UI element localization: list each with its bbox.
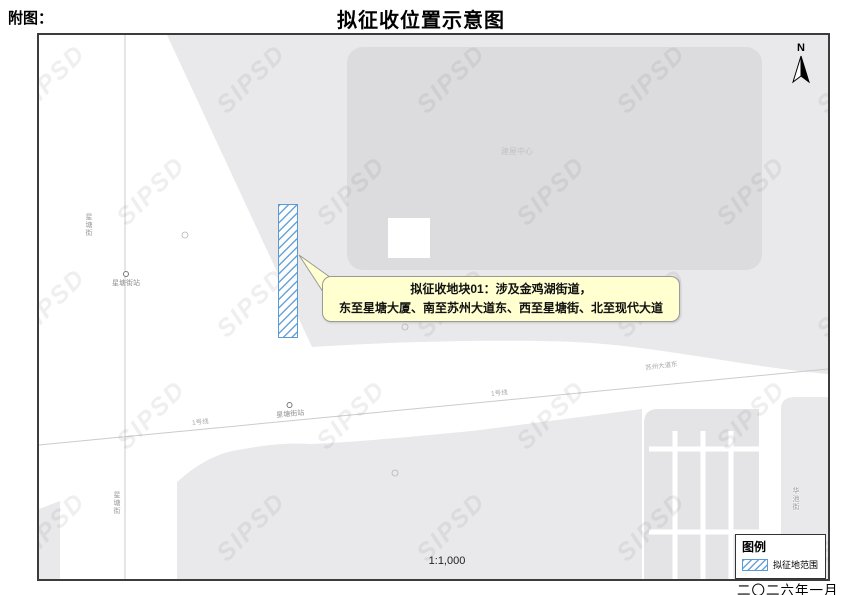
parcel-sw-sliver — [39, 501, 60, 579]
legend-item: 拟征地范围 — [742, 558, 819, 571]
legend-hatch-swatch — [742, 559, 768, 571]
legend-title: 图例 — [742, 538, 819, 555]
metro-icon — [286, 402, 293, 409]
label-building-center: 建屋中心 — [501, 146, 533, 157]
north-label: N — [797, 43, 805, 54]
building-notch — [388, 218, 430, 258]
metro-icon — [123, 271, 129, 277]
parcel-south-block — [177, 409, 642, 579]
label-metro-line1-west: 1号线 — [192, 415, 209, 426]
map-scale: 1:1,000 — [407, 555, 487, 567]
callout-line2: 东至星塘大厦、南至苏州大道东、西至星塘街、北至现代大道 — [339, 299, 663, 318]
label-xingtang-street-south: 星塘街 — [111, 491, 121, 515]
label-metro-line1-east: 1号线 — [491, 386, 508, 397]
legend-item-label: 拟征地范围 — [773, 558, 818, 571]
north-arrow: N — [789, 43, 813, 84]
callout-box: 拟征收地块01：涉及金鸡湖街道， 东至星塘大厦、南至苏州大道东、西至星塘街、北至… — [322, 276, 680, 322]
label-huachi-street: 华池街 — [790, 487, 800, 511]
page-title: 拟征收位置示意图 — [0, 4, 842, 33]
map-frame: SIPSDSIPSDSIPSDSIPSDSIPSDSIPSDSIPSDSIPSD… — [37, 33, 830, 581]
callout-line1: 拟征收地块01：涉及金鸡湖街道， — [410, 280, 591, 299]
legend-box: 图例 拟征地范围 — [735, 534, 826, 579]
station-xingtang-west: 星塘街站 — [103, 271, 149, 288]
page: 附图： 拟征收位置示意图 — [0, 0, 842, 595]
north-arrow-icon — [790, 54, 812, 84]
date-text: 二〇二六年一月 — [737, 579, 839, 595]
label-xingtang-street-north: 星塘街 — [83, 213, 93, 237]
station-label: 星塘街站 — [112, 278, 140, 288]
